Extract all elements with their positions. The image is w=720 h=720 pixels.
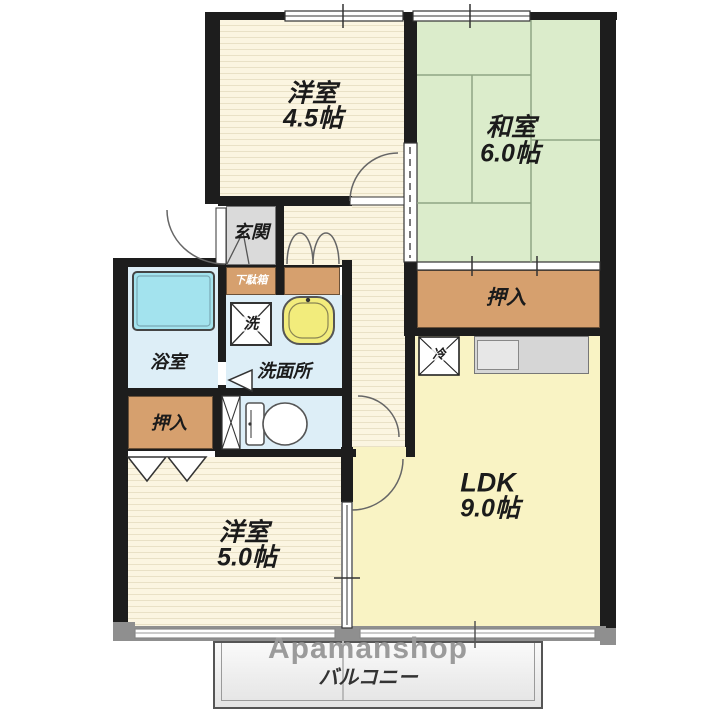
room-western-5-area: 5.0帖 (217, 546, 277, 571)
door-arc-west45 (350, 153, 398, 201)
closet-folding-door (128, 457, 166, 481)
balcony-label: バルコニー (318, 668, 418, 688)
room-western-4-5-area: 4.5帖 (283, 107, 343, 132)
bath-door-mark (229, 370, 252, 391)
sink-icon (283, 297, 334, 344)
washer-spot-label: 洗 (242, 317, 259, 332)
brand-watermark: Apamanshop (268, 632, 468, 666)
closet-upper-label: 押入 (486, 288, 526, 308)
washroom-folding-door-arc (313, 233, 339, 264)
entrance-door-leaf (216, 208, 226, 264)
washroom-folding-door-arc (287, 233, 313, 264)
room-ldk-area: 9.0帖 (460, 497, 520, 522)
toilet-bowl (263, 403, 307, 445)
closet-lower-label: 押入 (151, 414, 187, 432)
closet-folding-door (168, 457, 206, 481)
washroom-label: 洗面所 (257, 362, 311, 380)
room-ldk-name: LDK (460, 470, 516, 497)
bathroom-label: 浴室 (150, 353, 186, 371)
door-arc-ldk-side (352, 459, 403, 510)
room-western-5-name: 洋室 (219, 521, 269, 546)
bathtub-icon (133, 272, 214, 330)
floor-plan: 洋室 4.5帖 和室 6.0帖 LDK 9.0帖 洋室 5.0帖 押入 押入 玄… (0, 0, 720, 720)
room-japanese-6-name: 和室 (486, 116, 536, 141)
entrance-label: 玄関 (233, 223, 269, 241)
door-arc-hall-side (358, 396, 399, 437)
room-western-4-5-name: 洋室 (287, 82, 337, 107)
fridge-spot-label: 冷 (431, 348, 446, 361)
room-japanese-6-area: 6.0帖 (480, 142, 540, 167)
door-leaf-west45 (350, 197, 404, 205)
walls-and-fixtures (0, 0, 720, 720)
fusuma-track (417, 262, 600, 270)
shoe-cabinet-label: 下駄箱 (235, 276, 268, 287)
faucet-dot (306, 298, 310, 302)
